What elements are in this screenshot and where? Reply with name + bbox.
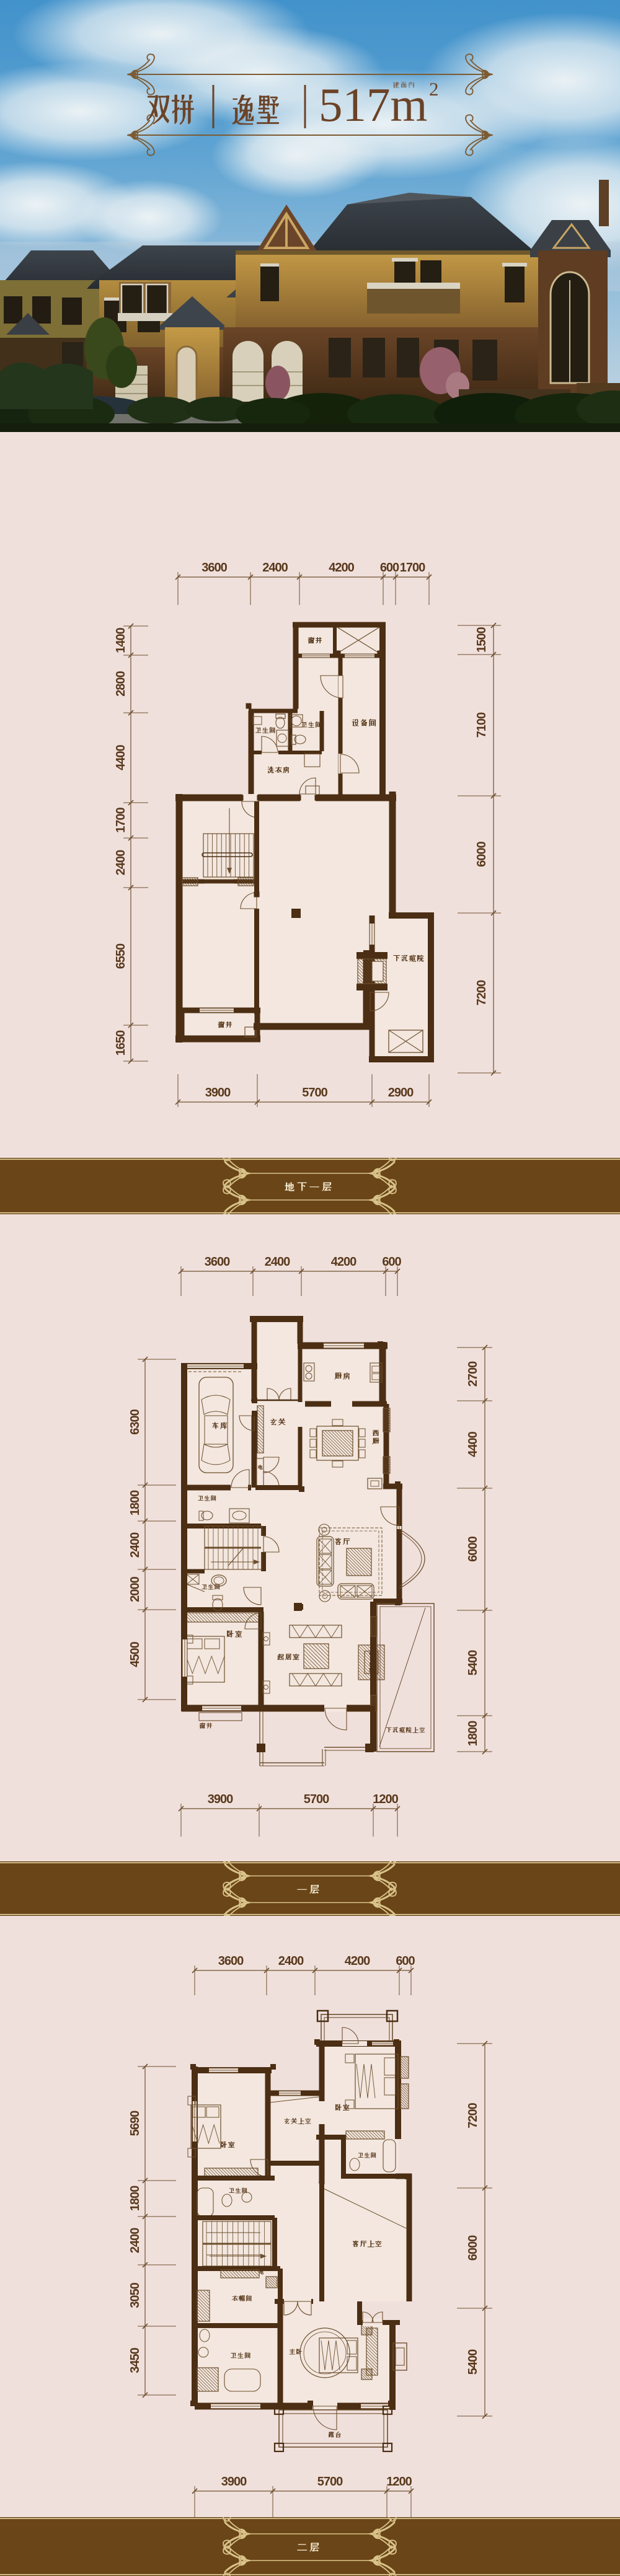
svg-text:7200: 7200	[466, 2102, 480, 2128]
svg-text:1800: 1800	[128, 1490, 142, 1515]
svg-text:6000: 6000	[466, 1536, 480, 1561]
svg-text:2800: 2800	[114, 671, 128, 696]
svg-text:4400: 4400	[114, 744, 128, 770]
svg-text:600: 600	[396, 1954, 415, 1968]
svg-text:2400: 2400	[128, 1532, 142, 1558]
svg-text:6300: 6300	[128, 1409, 142, 1434]
svg-text:1500: 1500	[475, 627, 489, 652]
svg-text:1800: 1800	[466, 1721, 480, 1746]
svg-text:2400: 2400	[265, 1255, 290, 1269]
svg-text:2: 2	[429, 78, 439, 100]
svg-text:5400: 5400	[466, 1650, 480, 1675]
svg-text:3900: 3900	[205, 1086, 231, 1100]
svg-text:6000: 6000	[475, 841, 489, 867]
svg-text:2400: 2400	[278, 1954, 304, 1968]
svg-text:2400: 2400	[128, 2228, 142, 2253]
svg-text:3050: 3050	[128, 2282, 142, 2308]
svg-text:7100: 7100	[475, 712, 489, 738]
svg-text:4400: 4400	[466, 1431, 480, 1457]
svg-text:3600: 3600	[205, 1255, 230, 1269]
svg-text:517m: 517m	[319, 78, 427, 131]
svg-text:5700: 5700	[304, 1793, 329, 1806]
svg-text:2700: 2700	[466, 1361, 480, 1387]
svg-text:4200: 4200	[345, 1954, 370, 1968]
svg-text:1800: 1800	[128, 2186, 142, 2211]
svg-text:3900: 3900	[208, 1793, 233, 1806]
svg-text:5700: 5700	[302, 1086, 327, 1100]
svg-text:5700: 5700	[317, 2475, 343, 2489]
svg-text:6000: 6000	[466, 2235, 480, 2261]
svg-text:6550: 6550	[114, 943, 128, 969]
svg-text:3450: 3450	[128, 2347, 142, 2373]
svg-text:1700: 1700	[400, 561, 425, 575]
svg-text:7200: 7200	[475, 980, 489, 1005]
svg-text:1650: 1650	[114, 1030, 128, 1056]
svg-text:5400: 5400	[466, 2349, 480, 2375]
svg-text:2000: 2000	[128, 1576, 142, 1602]
svg-text:5690: 5690	[128, 2111, 142, 2136]
svg-text:4500: 4500	[128, 1641, 142, 1667]
svg-text:3900: 3900	[221, 2475, 247, 2489]
svg-text:3600: 3600	[218, 1954, 244, 1968]
svg-text:600: 600	[382, 1255, 401, 1269]
svg-text:1200: 1200	[386, 2475, 412, 2489]
svg-text:2900: 2900	[388, 1086, 414, 1100]
svg-text:4200: 4200	[329, 561, 354, 575]
svg-text:1700: 1700	[114, 807, 128, 832]
svg-text:1200: 1200	[373, 1793, 398, 1806]
svg-text:2400: 2400	[262, 561, 288, 575]
svg-text:4200: 4200	[331, 1255, 356, 1269]
svg-text:3600: 3600	[201, 561, 227, 575]
svg-text:2400: 2400	[114, 850, 128, 875]
svg-text:1400: 1400	[114, 627, 128, 653]
svg-text:600: 600	[380, 561, 399, 575]
